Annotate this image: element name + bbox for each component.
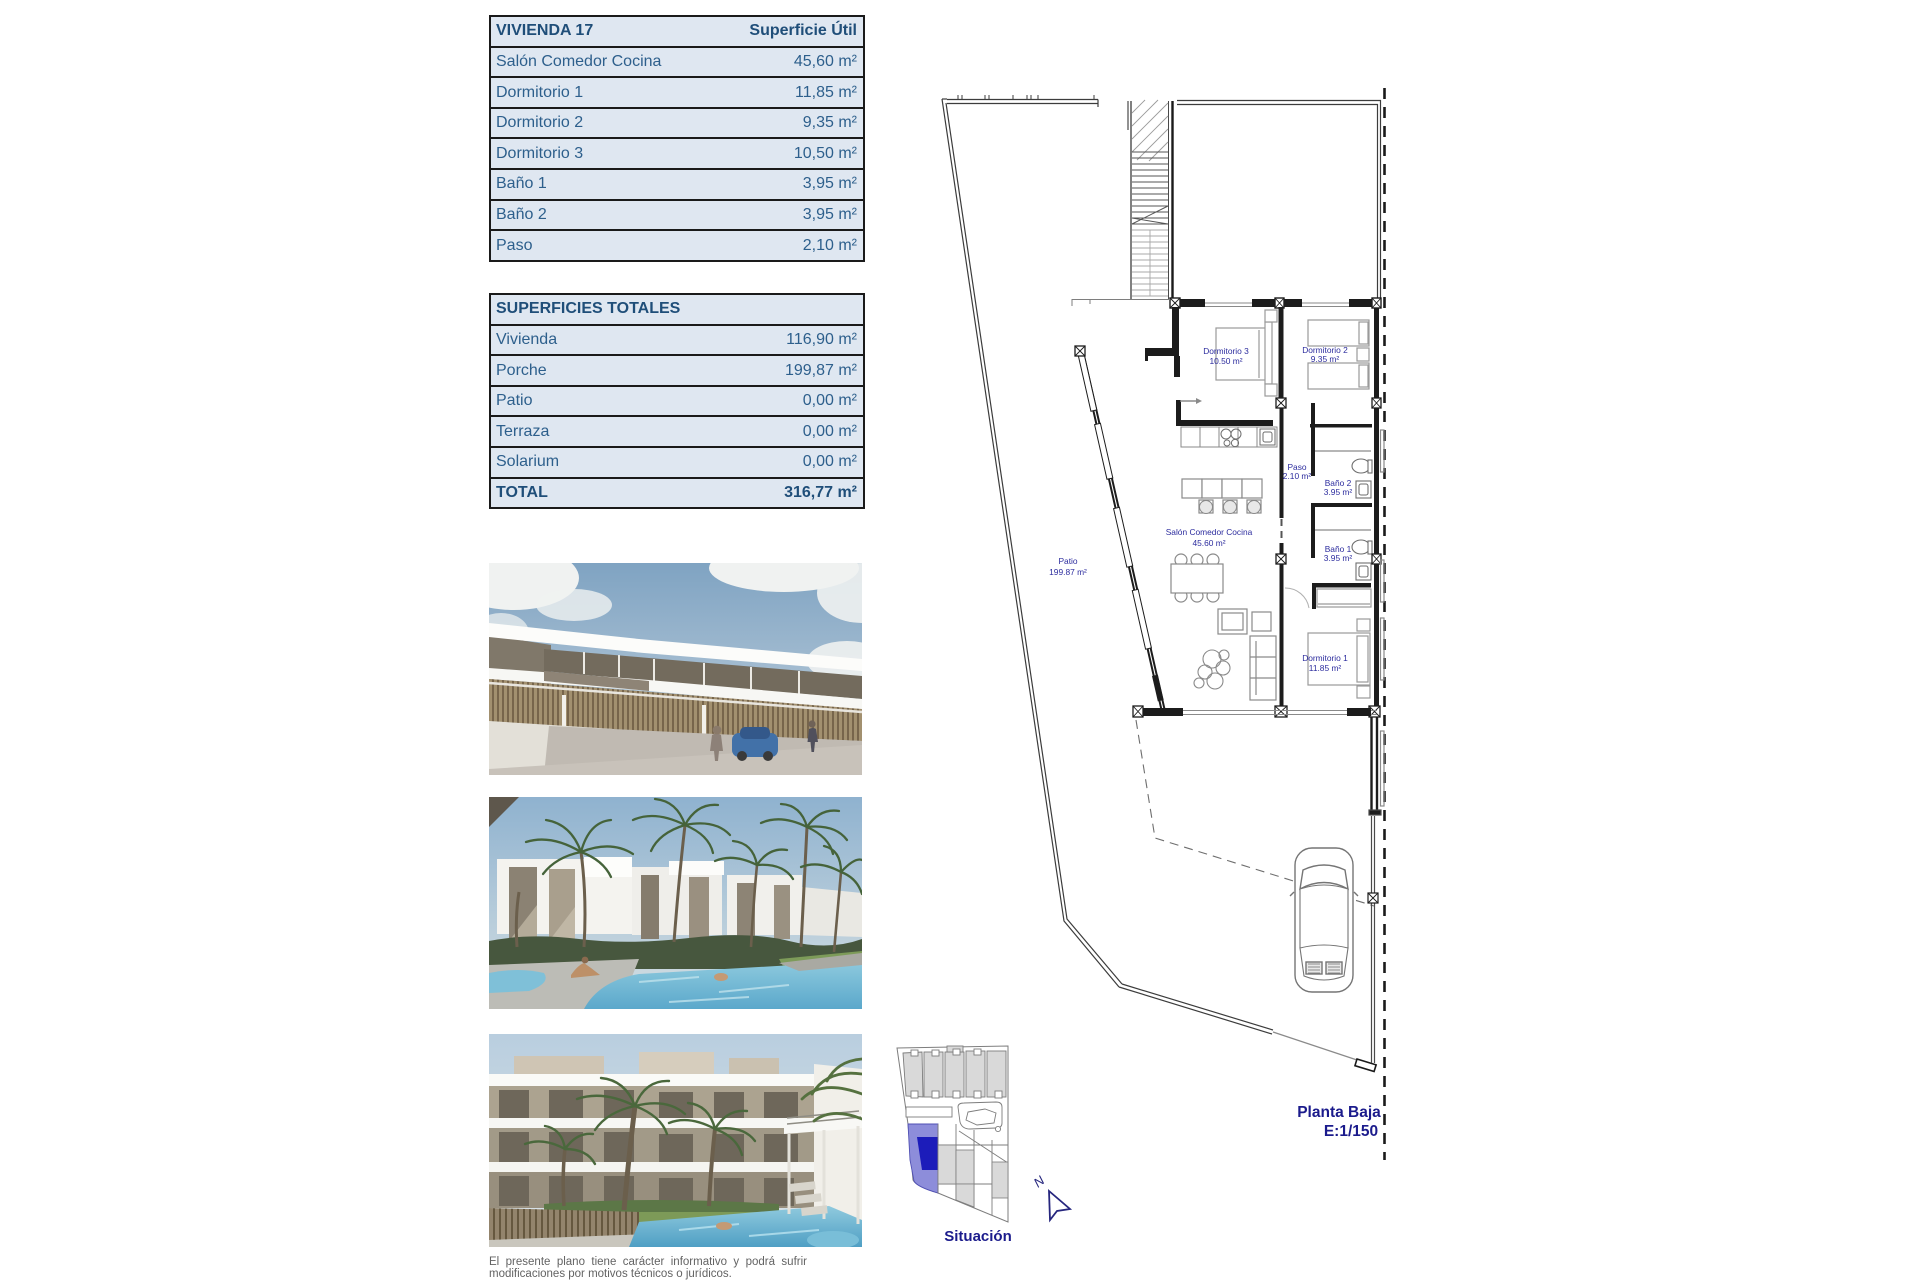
svg-text:3.95 m²: 3.95 m² (1324, 553, 1353, 563)
svg-text:10.50 m²: 10.50 m² (1209, 356, 1242, 366)
svg-text:Dormitorio 3: Dormitorio 3 (1203, 346, 1249, 356)
svg-text:9.35 m²: 9.35 m² (1311, 354, 1340, 364)
svg-text:Patio: Patio (1058, 556, 1077, 566)
svg-text:Situación: Situación (944, 1228, 1012, 1245)
svg-text:Dormitorio 1: Dormitorio 1 (1302, 653, 1348, 663)
svg-text:Salón Comedor Cocina: Salón Comedor Cocina (1166, 527, 1253, 537)
svg-text:2.10 m²: 2.10 m² (1283, 471, 1312, 481)
svg-text:11.85 m²: 11.85 m² (1309, 663, 1342, 673)
svg-text:N: N (1031, 1172, 1048, 1190)
svg-text:E:1/150: E:1/150 (1324, 1123, 1378, 1140)
svg-text:45.60 m²: 45.60 m² (1192, 538, 1225, 548)
svg-text:Planta Baja: Planta Baja (1297, 1104, 1381, 1121)
svg-text:3.95 m²: 3.95 m² (1324, 487, 1353, 497)
svg-text:199.87 m²: 199.87 m² (1049, 567, 1087, 577)
